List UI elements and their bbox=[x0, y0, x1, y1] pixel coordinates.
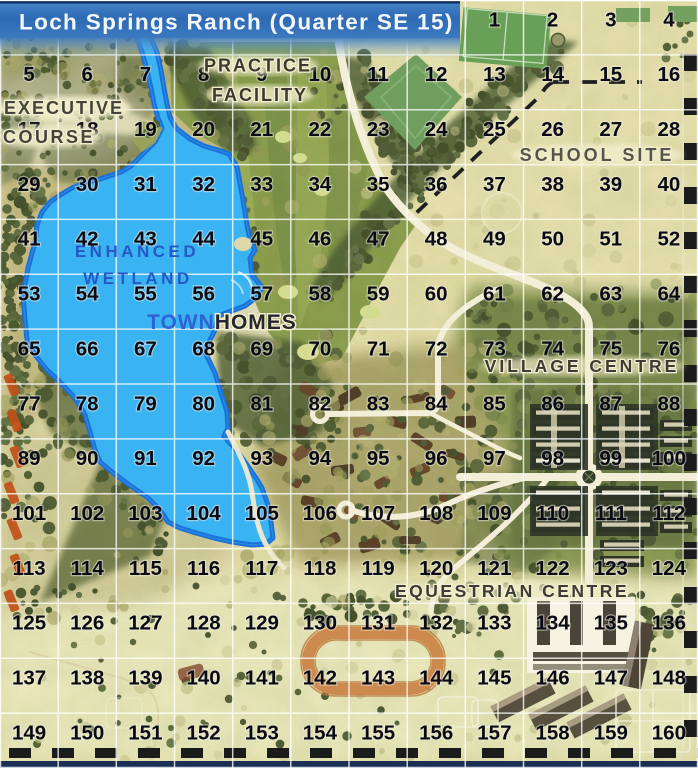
svg-text:6: 6 bbox=[81, 63, 92, 86]
svg-text:150: 150 bbox=[70, 721, 104, 744]
svg-text:39: 39 bbox=[599, 173, 622, 196]
svg-text:129: 129 bbox=[245, 612, 279, 635]
svg-text:89: 89 bbox=[18, 447, 41, 470]
svg-text:47: 47 bbox=[367, 228, 390, 251]
svg-text:112: 112 bbox=[652, 502, 685, 525]
svg-text:159: 159 bbox=[594, 721, 628, 744]
svg-text:80: 80 bbox=[192, 392, 215, 415]
svg-text:68: 68 bbox=[192, 337, 215, 360]
svg-text:113: 113 bbox=[13, 557, 46, 580]
svg-text:114: 114 bbox=[71, 557, 105, 580]
svg-text:63: 63 bbox=[599, 283, 622, 306]
svg-text:24: 24 bbox=[425, 118, 448, 141]
svg-text:36: 36 bbox=[425, 173, 448, 196]
svg-text:59: 59 bbox=[367, 283, 390, 306]
svg-text:72: 72 bbox=[425, 337, 448, 360]
svg-text:49: 49 bbox=[483, 228, 506, 251]
svg-text:86: 86 bbox=[541, 392, 564, 415]
svg-text:141: 141 bbox=[245, 667, 279, 690]
svg-text:61: 61 bbox=[483, 283, 506, 306]
svg-text:40: 40 bbox=[657, 173, 680, 196]
svg-text:1: 1 bbox=[489, 8, 500, 31]
svg-text:128: 128 bbox=[186, 612, 220, 635]
svg-text:124: 124 bbox=[652, 557, 687, 580]
svg-text:121: 121 bbox=[477, 557, 511, 580]
svg-text:VILLAGE CENTRE: VILLAGE CENTRE bbox=[485, 356, 680, 376]
svg-text:96: 96 bbox=[425, 447, 448, 470]
svg-text:131: 131 bbox=[361, 612, 395, 635]
svg-text:156: 156 bbox=[419, 721, 453, 744]
svg-text:48: 48 bbox=[425, 228, 448, 251]
svg-text:35: 35 bbox=[367, 173, 390, 196]
svg-text:104: 104 bbox=[186, 502, 221, 525]
svg-text:158: 158 bbox=[535, 721, 569, 744]
svg-text:12: 12 bbox=[425, 63, 448, 86]
svg-text:29: 29 bbox=[18, 173, 41, 196]
svg-text:FACILITY: FACILITY bbox=[212, 85, 308, 105]
svg-text:81: 81 bbox=[250, 392, 273, 415]
svg-text:37: 37 bbox=[483, 173, 506, 196]
svg-text:5: 5 bbox=[23, 63, 34, 86]
svg-text:58: 58 bbox=[308, 283, 331, 306]
svg-text:53: 53 bbox=[18, 283, 41, 306]
svg-text:71: 71 bbox=[367, 337, 390, 360]
svg-text:25: 25 bbox=[483, 118, 506, 141]
svg-text:119: 119 bbox=[362, 557, 395, 580]
svg-text:11: 11 bbox=[367, 63, 389, 86]
svg-text:57: 57 bbox=[250, 283, 273, 306]
svg-text:32: 32 bbox=[192, 173, 215, 196]
svg-text:20: 20 bbox=[192, 118, 215, 141]
svg-text:15: 15 bbox=[599, 63, 622, 86]
svg-text:108: 108 bbox=[419, 502, 453, 525]
svg-text:83: 83 bbox=[367, 392, 390, 415]
svg-text:38: 38 bbox=[541, 173, 564, 196]
svg-text:88: 88 bbox=[657, 392, 680, 415]
svg-text:52: 52 bbox=[657, 228, 680, 251]
svg-text:26: 26 bbox=[541, 118, 564, 141]
svg-text:85: 85 bbox=[483, 392, 506, 415]
svg-text:3: 3 bbox=[605, 8, 616, 31]
svg-text:95: 95 bbox=[367, 447, 390, 470]
svg-text:50: 50 bbox=[541, 228, 564, 251]
svg-text:30: 30 bbox=[76, 173, 99, 196]
svg-text:153: 153 bbox=[245, 721, 279, 744]
svg-text:143: 143 bbox=[361, 667, 395, 690]
svg-text:160: 160 bbox=[652, 721, 686, 744]
svg-text:101: 101 bbox=[12, 502, 46, 525]
svg-text:65: 65 bbox=[18, 337, 41, 360]
svg-text:TOWNHOMES: TOWNHOMES bbox=[147, 311, 297, 334]
svg-text:2: 2 bbox=[547, 8, 558, 31]
svg-text:91: 91 bbox=[134, 447, 157, 470]
svg-text:22: 22 bbox=[308, 118, 331, 141]
svg-text:137: 137 bbox=[12, 667, 46, 690]
svg-text:79: 79 bbox=[134, 392, 157, 415]
svg-text:133: 133 bbox=[477, 612, 511, 635]
svg-text:94: 94 bbox=[308, 447, 331, 470]
svg-text:70: 70 bbox=[308, 337, 331, 360]
svg-text:125: 125 bbox=[12, 612, 46, 635]
svg-text:78: 78 bbox=[76, 392, 99, 415]
svg-text:87: 87 bbox=[599, 392, 622, 415]
svg-text:69: 69 bbox=[250, 337, 273, 360]
svg-text:127: 127 bbox=[128, 612, 162, 635]
svg-text:31: 31 bbox=[134, 173, 157, 196]
svg-text:100: 100 bbox=[652, 447, 686, 470]
svg-text:98: 98 bbox=[541, 447, 564, 470]
svg-text:51: 51 bbox=[599, 228, 622, 251]
svg-text:117: 117 bbox=[245, 557, 278, 580]
svg-text:60: 60 bbox=[425, 283, 448, 306]
svg-text:155: 155 bbox=[361, 721, 395, 744]
svg-text:109: 109 bbox=[477, 502, 511, 525]
svg-text:PRACTICE: PRACTICE bbox=[204, 56, 312, 76]
svg-text:21: 21 bbox=[250, 118, 273, 141]
svg-text:130: 130 bbox=[303, 612, 337, 635]
svg-text:WETLAND: WETLAND bbox=[83, 269, 192, 288]
svg-text:140: 140 bbox=[186, 667, 220, 690]
svg-text:123: 123 bbox=[594, 557, 628, 580]
svg-text:56: 56 bbox=[192, 283, 215, 306]
svg-text:41: 41 bbox=[18, 228, 41, 251]
svg-text:135: 135 bbox=[594, 612, 628, 635]
svg-text:46: 46 bbox=[308, 228, 331, 251]
svg-text:COURSE: COURSE bbox=[3, 127, 95, 147]
svg-text:34: 34 bbox=[308, 173, 331, 196]
svg-text:106: 106 bbox=[303, 502, 337, 525]
svg-text:EQUESTRIAN CENTRE: EQUESTRIAN CENTRE bbox=[395, 581, 629, 601]
svg-text:13: 13 bbox=[483, 63, 506, 86]
svg-text:107: 107 bbox=[361, 502, 395, 525]
svg-text:4: 4 bbox=[663, 8, 675, 31]
svg-text:45: 45 bbox=[250, 228, 273, 251]
svg-text:120: 120 bbox=[419, 557, 453, 580]
svg-text:EXECUTIVE: EXECUTIVE bbox=[4, 98, 124, 118]
svg-text:110: 110 bbox=[536, 502, 569, 525]
svg-text:16: 16 bbox=[657, 63, 680, 86]
svg-text:19: 19 bbox=[134, 118, 157, 141]
svg-text:66: 66 bbox=[76, 337, 99, 360]
svg-text:27: 27 bbox=[599, 118, 622, 141]
svg-text:122: 122 bbox=[535, 557, 569, 580]
svg-text:97: 97 bbox=[483, 447, 506, 470]
svg-text:152: 152 bbox=[186, 721, 220, 744]
svg-text:23: 23 bbox=[367, 118, 390, 141]
svg-text:77: 77 bbox=[18, 392, 41, 415]
svg-text:147: 147 bbox=[594, 667, 628, 690]
svg-text:SCHOOL SITE: SCHOOL SITE bbox=[520, 145, 675, 165]
svg-text:145: 145 bbox=[477, 667, 511, 690]
svg-text:134: 134 bbox=[535, 612, 570, 635]
svg-text:84: 84 bbox=[425, 392, 448, 415]
svg-text:7: 7 bbox=[140, 63, 151, 86]
svg-text:62: 62 bbox=[541, 283, 564, 306]
svg-text:99: 99 bbox=[599, 447, 622, 470]
svg-text:111: 111 bbox=[595, 502, 627, 525]
svg-text:151: 151 bbox=[128, 721, 162, 744]
svg-text:138: 138 bbox=[70, 667, 104, 690]
svg-text:116: 116 bbox=[187, 557, 220, 580]
svg-text:142: 142 bbox=[303, 667, 337, 690]
svg-text:82: 82 bbox=[308, 392, 331, 415]
svg-text:149: 149 bbox=[12, 721, 46, 744]
svg-text:103: 103 bbox=[128, 502, 162, 525]
svg-text:126: 126 bbox=[70, 612, 104, 635]
svg-text:Loch Springs Ranch (Quarter SE: Loch Springs Ranch (Quarter SE 15) bbox=[19, 10, 454, 35]
svg-text:64: 64 bbox=[657, 283, 680, 306]
svg-text:157: 157 bbox=[477, 721, 511, 744]
svg-text:136: 136 bbox=[652, 612, 686, 635]
svg-text:105: 105 bbox=[245, 502, 279, 525]
svg-text:92: 92 bbox=[192, 447, 215, 470]
svg-text:139: 139 bbox=[128, 667, 162, 690]
svg-text:118: 118 bbox=[303, 557, 336, 580]
svg-text:33: 33 bbox=[250, 173, 273, 196]
svg-text:14: 14 bbox=[541, 63, 564, 86]
svg-text:90: 90 bbox=[76, 447, 99, 470]
svg-text:93: 93 bbox=[250, 447, 273, 470]
svg-text:132: 132 bbox=[419, 612, 453, 635]
svg-text:144: 144 bbox=[419, 667, 454, 690]
svg-text:154: 154 bbox=[303, 721, 338, 744]
svg-text:28: 28 bbox=[657, 118, 680, 141]
svg-text:102: 102 bbox=[70, 502, 104, 525]
svg-text:115: 115 bbox=[129, 557, 162, 580]
svg-text:67: 67 bbox=[134, 337, 157, 360]
svg-text:ENHANCED: ENHANCED bbox=[75, 242, 199, 261]
svg-text:148: 148 bbox=[652, 667, 686, 690]
svg-text:146: 146 bbox=[535, 667, 569, 690]
